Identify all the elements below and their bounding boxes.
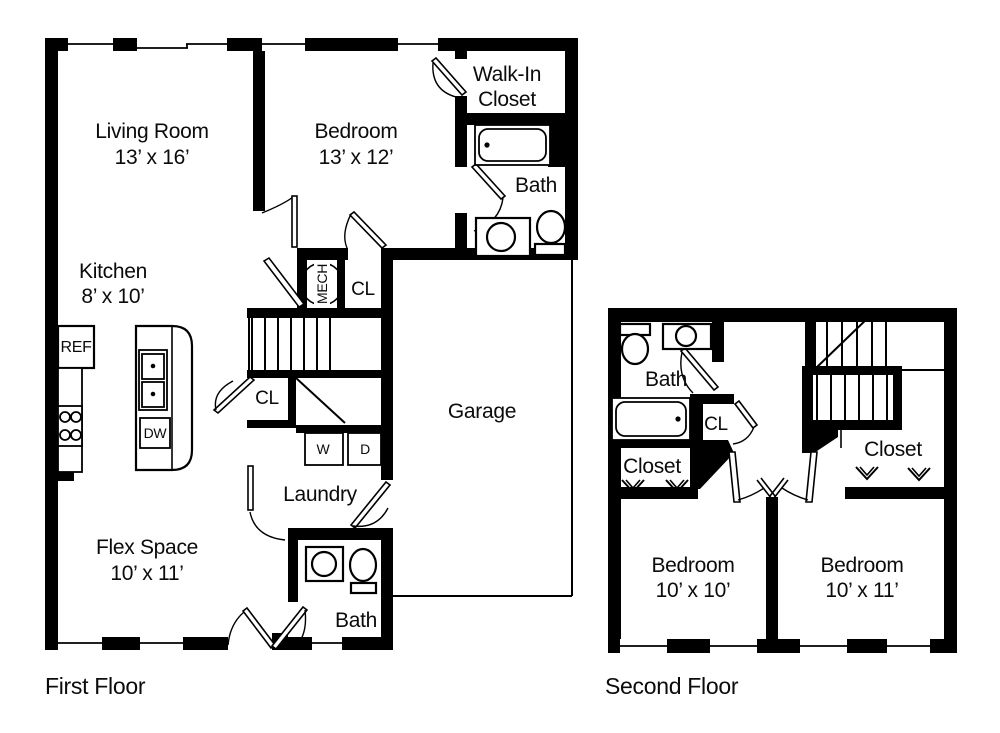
upper-bathtub xyxy=(475,125,550,165)
island-sink xyxy=(139,350,167,410)
upper-bath-toilet xyxy=(535,211,565,255)
understair-diagonal xyxy=(296,378,345,423)
bedroom-label: Bedroom xyxy=(314,120,397,143)
upper-cl-label: CL xyxy=(351,279,375,300)
second-floor-title: Second Floor xyxy=(605,673,739,699)
kitchen-dims: 8’ x 10’ xyxy=(81,285,144,308)
upper-bath-sink xyxy=(476,218,530,256)
closet-left-label: Closet xyxy=(623,455,681,478)
dryer-label: D xyxy=(360,441,370,457)
washer-label: W xyxy=(317,441,331,457)
lower-bath-label: Bath xyxy=(335,609,377,632)
floor-plan-canvas: Living Room 13’ x 16’ Bedroom 13’ x 12’ … xyxy=(0,0,1000,733)
upper-bath-label: Bath xyxy=(515,174,557,197)
dishwasher-label: DW xyxy=(144,425,168,441)
lower-cl-label: CL xyxy=(255,388,279,409)
closet-right-rod-hooks xyxy=(856,467,930,480)
bedroom-right-dims: 10’ x 11’ xyxy=(825,579,898,602)
lower-bath-toilet xyxy=(350,549,376,593)
bedroom-dims: 13’ x 12’ xyxy=(319,146,394,169)
bedroom-right-label: Bedroom xyxy=(820,554,903,577)
walk-in-closet-label-line2: Closet xyxy=(478,88,536,111)
living-room-dims: 13’ x 16’ xyxy=(115,146,190,169)
closet-right-label: Closet xyxy=(864,438,922,461)
stair-up-cut-line xyxy=(816,315,871,368)
garage-outline xyxy=(393,254,572,596)
sf-bath-label: Bath xyxy=(645,368,687,391)
lower-bath-sink xyxy=(306,547,343,581)
sf-toilet xyxy=(620,324,650,364)
mech-label: MECH xyxy=(314,264,330,304)
walk-in-closet-label-line1: Walk-In xyxy=(473,63,541,86)
first-floor-fixtures xyxy=(58,125,565,593)
second-floor-plan: Bath CL Closet Closet Bedroom 10’ x 10’ … xyxy=(605,308,957,699)
first-floor-plan: Living Room 13’ x 16’ Bedroom 13’ x 12’ … xyxy=(45,38,578,699)
flex-space-dims: 10’ x 11’ xyxy=(110,562,183,585)
sf-sink xyxy=(663,324,711,349)
refrigerator-label: REF xyxy=(60,339,92,356)
flex-space-label: Flex Space xyxy=(96,536,198,559)
first-floor-title: First Floor xyxy=(45,673,146,699)
garage-label: Garage xyxy=(448,400,516,423)
stove-burners xyxy=(58,406,82,446)
floor-plan-drawing: Living Room 13’ x 16’ Bedroom 13’ x 12’ … xyxy=(0,0,1000,733)
living-room-label: Living Room xyxy=(95,120,208,143)
laundry-label: Laundry xyxy=(283,483,358,506)
sf-cl-label: CL xyxy=(704,414,728,435)
bedroom-left-label: Bedroom xyxy=(651,554,734,577)
mech-label-group: MECH xyxy=(314,262,330,306)
sf-bathtub xyxy=(612,398,690,440)
kitchen-label: Kitchen xyxy=(79,260,147,283)
bedroom-left-dims: 10’ x 10’ xyxy=(656,579,731,602)
